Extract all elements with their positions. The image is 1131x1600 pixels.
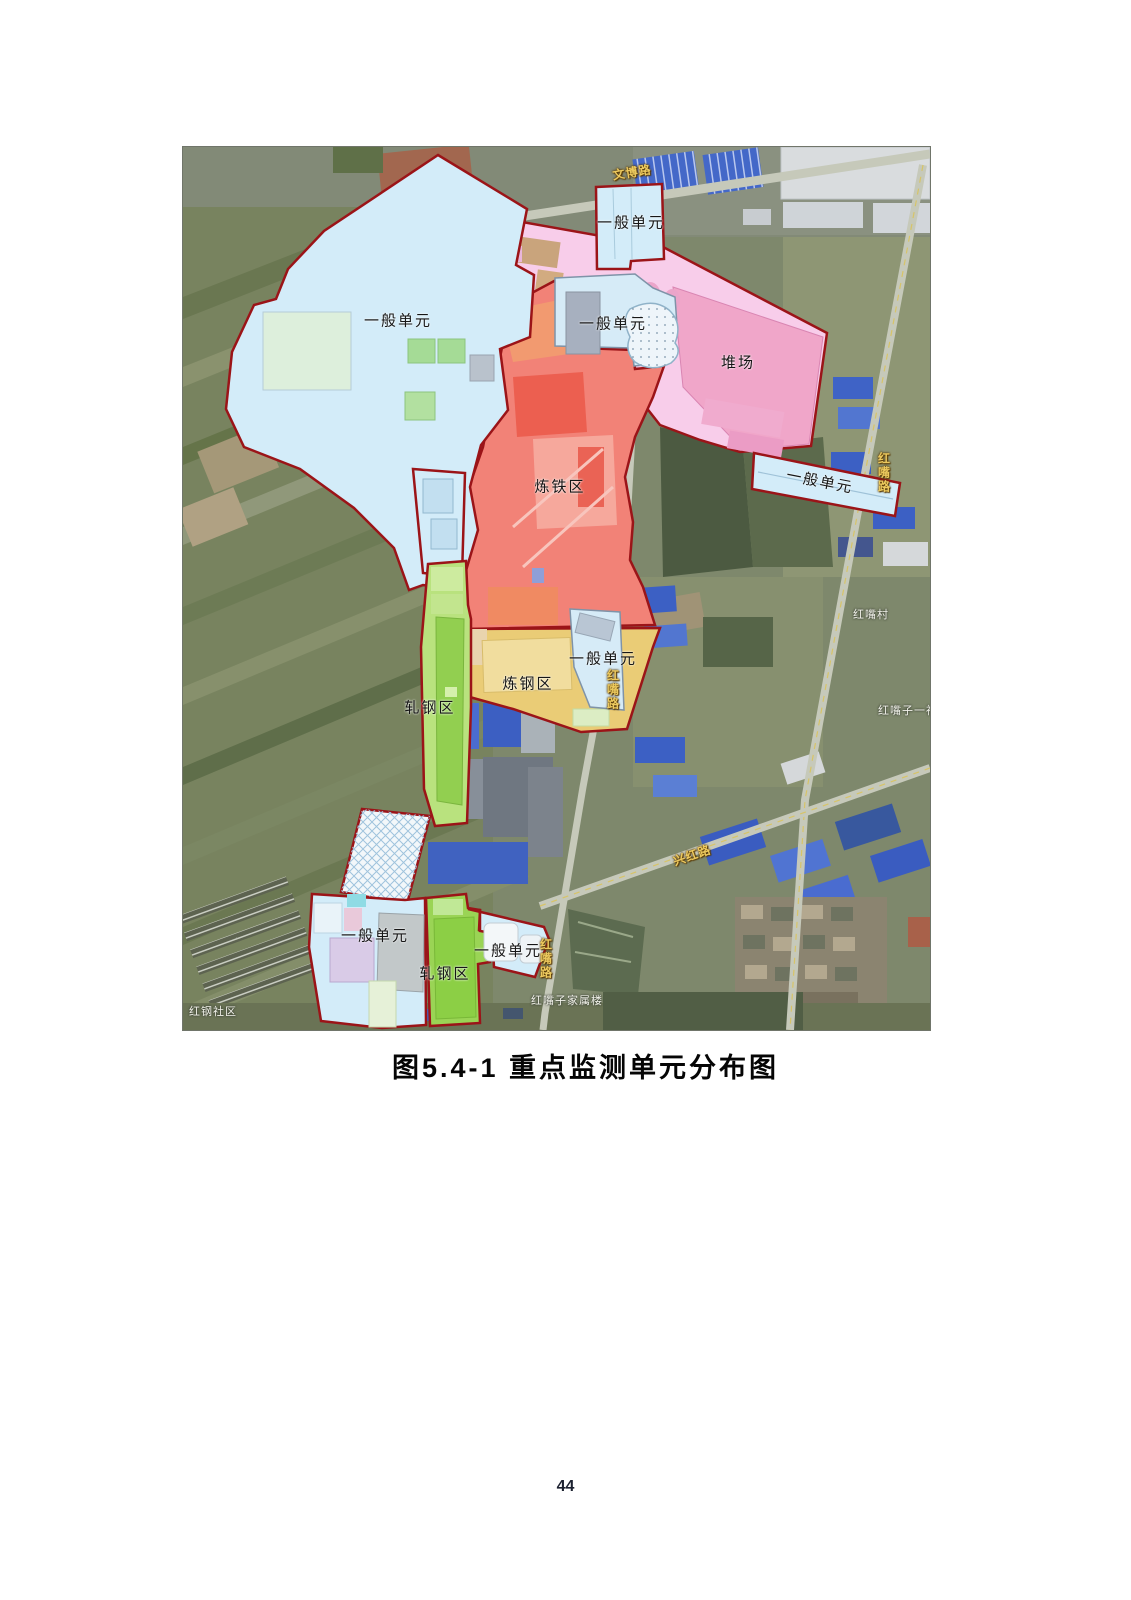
page-number: 44 [0, 1478, 1131, 1496]
zone-general-top-strip [596, 184, 664, 269]
zone-rolling-north [421, 561, 471, 826]
corridor-building [431, 519, 457, 549]
figure-caption: 图5.4-1 重点监测单元分布图 [40, 1046, 1131, 1085]
zone-general-south [309, 894, 426, 1028]
figure-map: 一般单元 一般单元 堆场 一般单元 炼铁区 一般单元 炼钢区 一般单元 轧钢区 … [183, 147, 930, 1030]
corridor-building [423, 479, 453, 513]
